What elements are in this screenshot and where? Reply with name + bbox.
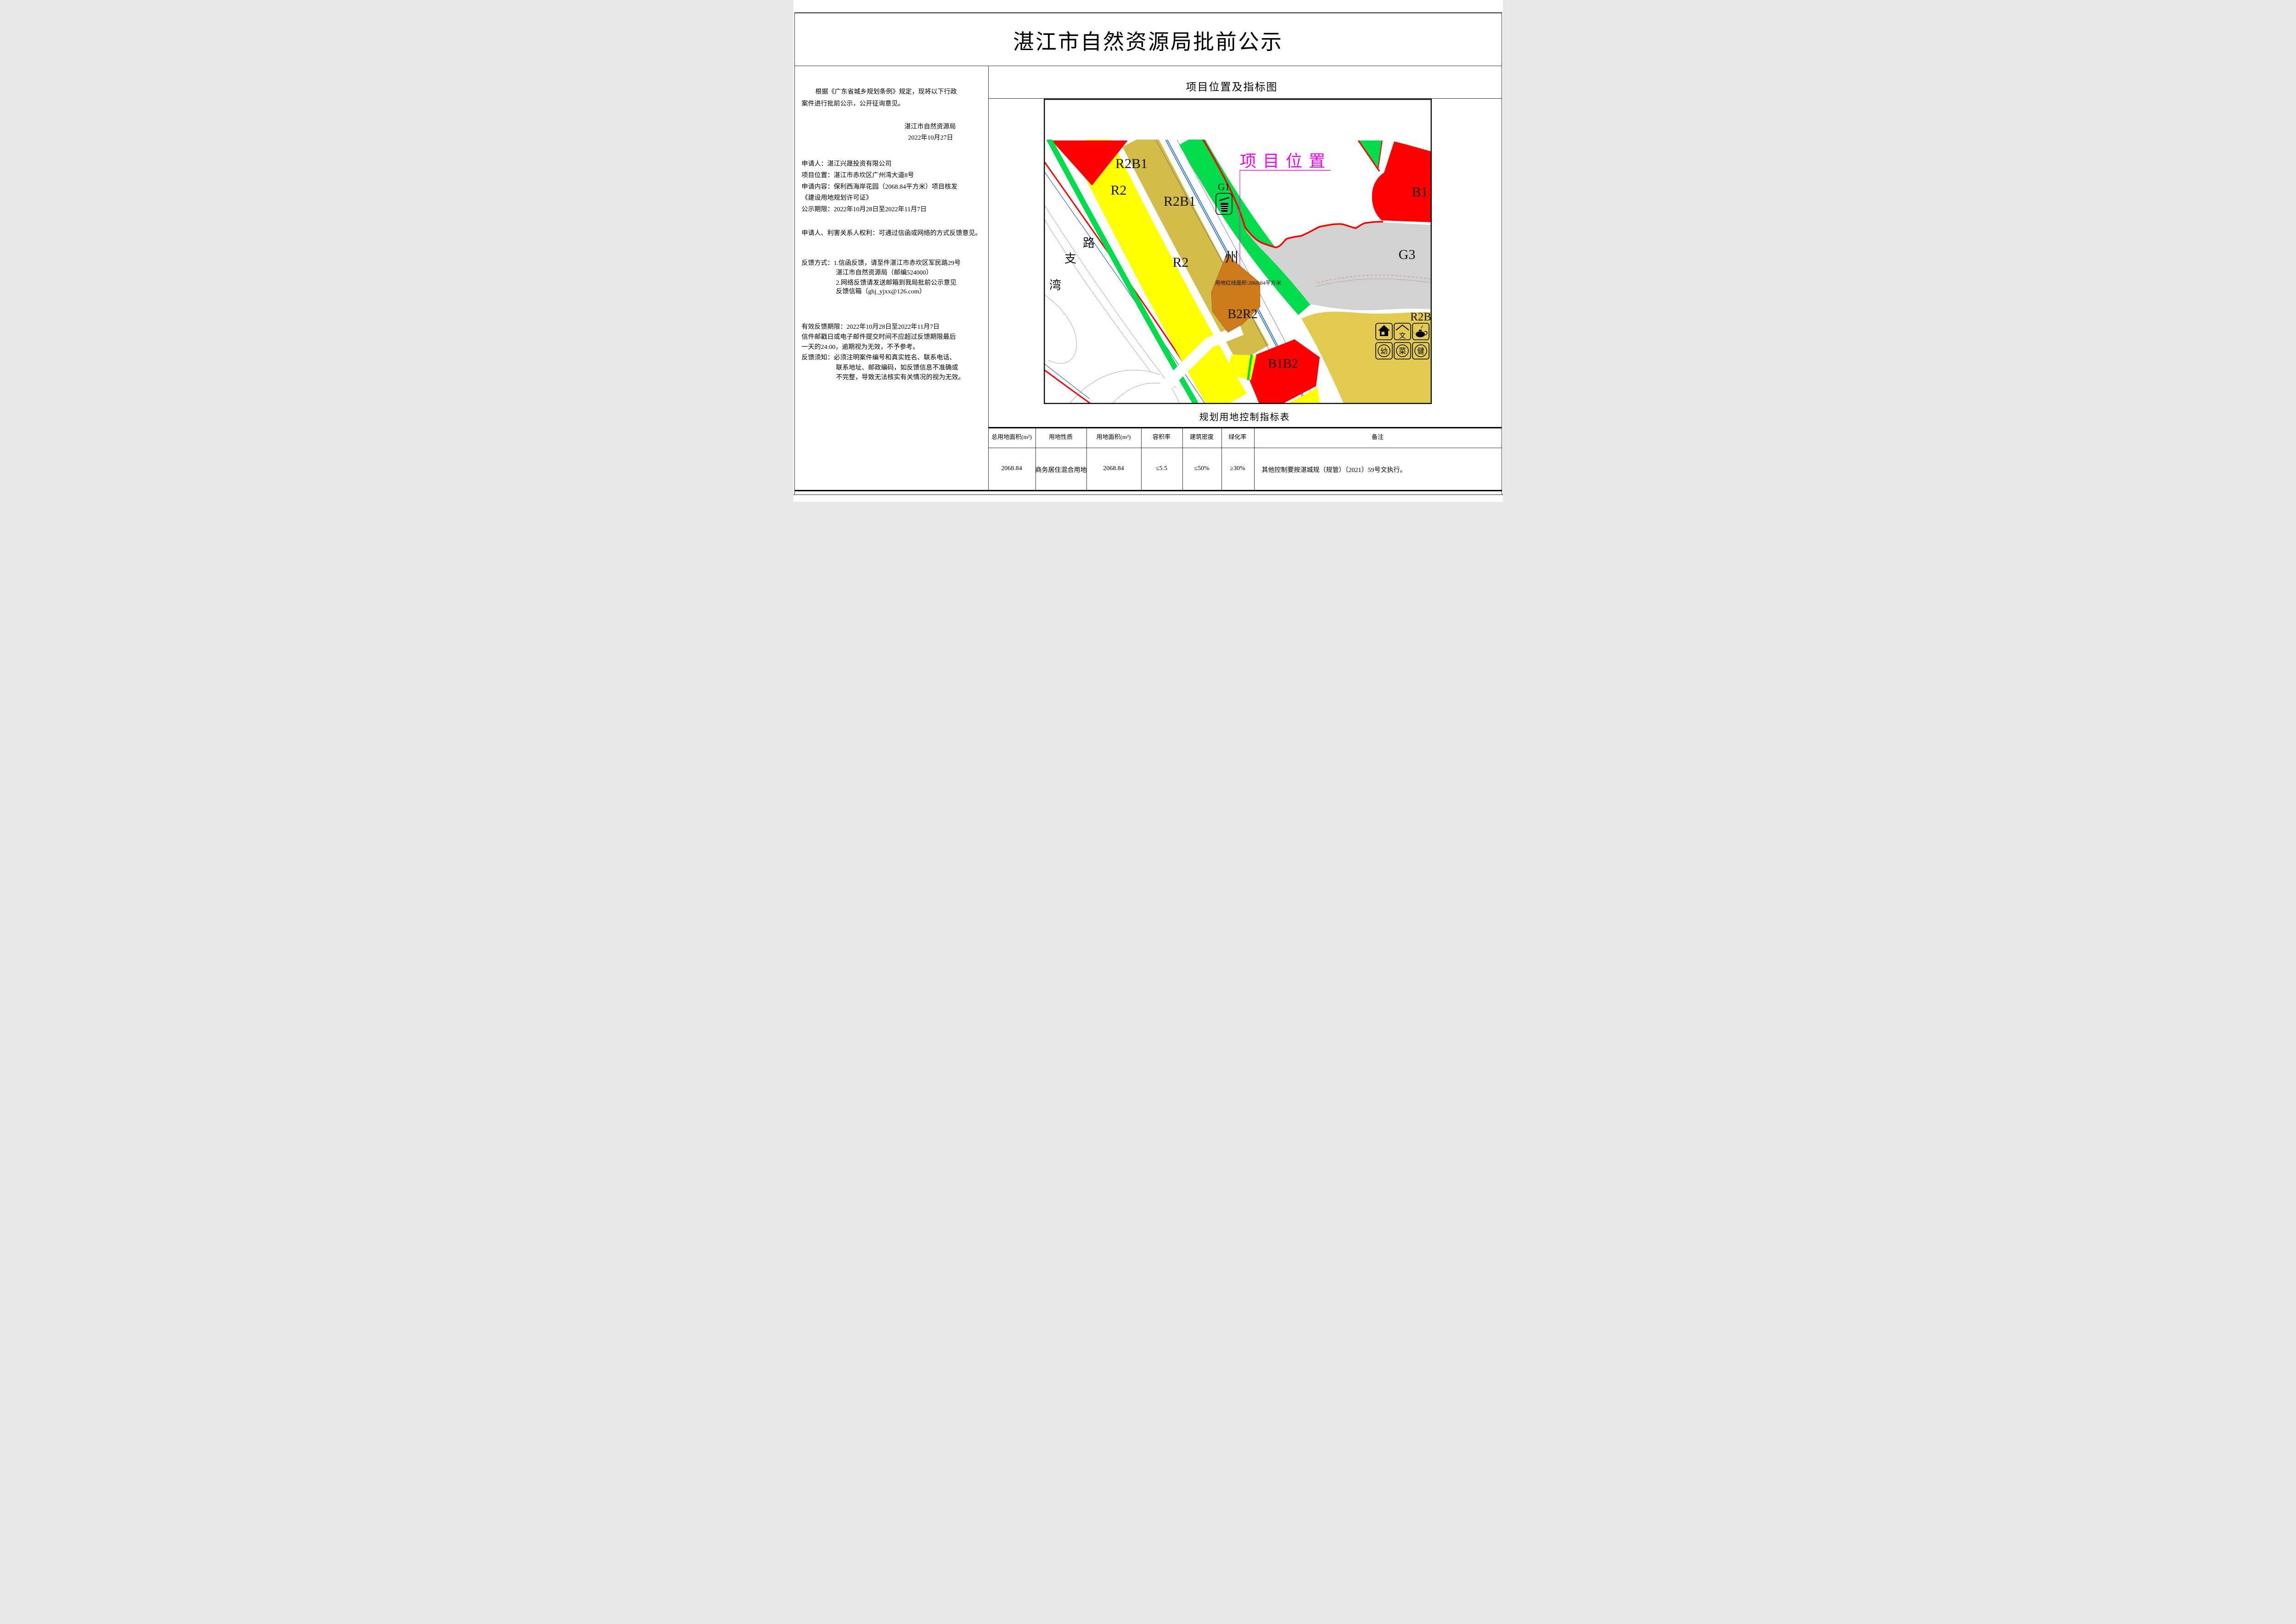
cell-land-area: 2068.84 [1086, 465, 1141, 472]
page-bottom-border [793, 495, 1503, 495]
label-r2-a: R2 [1110, 183, 1126, 198]
publicity-period-line: 公示期限：2022年10月28日至2022年11月7日 [802, 204, 927, 214]
page-right-border [1502, 12, 1502, 495]
label-b1b2: B1B2 [1268, 357, 1298, 371]
label-b1: B1 [1412, 185, 1428, 200]
rights-line: 申请人、利害关系人权利：可通过信函或网络的方式反馈意见。 [802, 228, 982, 237]
location-map: 项目位置 文 [1044, 99, 1432, 404]
notice-line1: 反馈须知：必须注明案件编号和真实姓名、联系电话、 [802, 353, 956, 362]
feedback-email-line: 反馈信箱（ghj_yjxx@126.com） [836, 287, 926, 296]
feedback-method-line2: 湛江市自然资源局（邮编524000） [836, 268, 933, 277]
map-top-mask [1044, 99, 1431, 140]
cell-remarks: 其他控制要按湛城规（规管）〔2021〕59号文执行。 [1262, 465, 1501, 474]
header-building-density: 建筑密度 [1182, 432, 1221, 441]
left-panel-line: 根据《广东省城乡规划条例》规定，现将以下行政 [816, 87, 957, 96]
table-bottom-line [794, 490, 1502, 491]
kindergarten-icon-char: 幼 [1380, 347, 1387, 355]
map-heading: 项目位置及指标图 [988, 78, 1476, 94]
health-icon-char: 健 [1417, 347, 1424, 355]
deadline-line2: 一天的24:00，逾期视为无效，不予参考。 [802, 342, 919, 351]
page-left-border [794, 12, 795, 495]
header-plot-ratio: 容积率 [1141, 432, 1182, 441]
teapot-lid [1419, 330, 1422, 331]
header-land-use-nature: 用地性质 [1035, 432, 1086, 441]
page-top-border [794, 12, 1502, 13]
issuer-name: 湛江市自然资源局 [905, 122, 956, 131]
notice-line2: 联系地址、邮政编码，如反馈信息不准确或 [836, 363, 958, 372]
announcement-page: 湛江市自然资源局批前公示 根据《广东省城乡规划条例》规定，现将以下行政 案件进行… [793, 0, 1503, 502]
label-b2r2: B2R2 [1227, 307, 1257, 321]
zoning-map-svg: 项目位置 文 [1044, 99, 1431, 404]
project-location-callout: 项目位置 [1240, 152, 1332, 170]
applicant-line: 申请人：湛江兴晟投资有限公司 [802, 159, 892, 168]
notice-line3: 不完整，导致无法核实有关情况的视为无效。 [836, 372, 965, 382]
road-name-zhi: 支 [1064, 252, 1076, 265]
label-g3: G3 [1398, 247, 1415, 262]
header-land-area: 用地面积(m²) [1086, 432, 1141, 441]
header-total-land-area: 总用地面积(m²) [988, 432, 1035, 441]
label-g1: G1 [1218, 181, 1230, 192]
application-content-line: 申请内容：保利西海岸花园（2068.84平方米）项目核发 [802, 182, 958, 191]
cell-green-ratio: ≥30% [1221, 465, 1254, 472]
project-location-line: 项目位置：湛江市赤坎区广州湾大道8号 [802, 170, 914, 180]
label-r2b1-a: R2B1 [1115, 156, 1147, 171]
valid-period-line: 有效反馈期限：2022年10月28日至2022年11月7日 [802, 322, 940, 331]
left-panel-line: 案件进行批前公示，公开征询意见。 [802, 99, 905, 108]
page-title: 湛江市自然资源局批前公示 [793, 25, 1503, 56]
table-title: 规划用地控制指标表 [988, 410, 1502, 423]
application-content-line2: 《建设用地规划许可证》 [802, 193, 872, 202]
teapot-body [1416, 332, 1425, 337]
table-thick-line [988, 427, 1502, 428]
panel-divider [988, 66, 989, 490]
cell-total-land-area: 2068.84 [988, 465, 1035, 472]
issue-date: 2022年10月27日 [908, 133, 953, 142]
road-name-zhou: 州 [1225, 250, 1238, 265]
label-r2-b: R2 [1172, 255, 1188, 270]
label-r2b: R2B [1410, 311, 1431, 323]
cell-plot-ratio: ≤5.5 [1141, 465, 1182, 472]
cell-land-use-nature: 商务居住混合用地 [1035, 465, 1086, 474]
house-icon-window [1381, 332, 1384, 335]
market-icon-char: 菜 [1398, 347, 1406, 355]
header-green-ratio: 绿化率 [1221, 432, 1254, 441]
road-name-wan: 湾 [1049, 279, 1061, 292]
feedback-method-line3: 2.网络反馈请发送邮箱到我局批前公示意见 [836, 278, 957, 287]
header-remarks: 备注 [1254, 432, 1502, 441]
label-r2b1-b: R2B1 [1163, 194, 1195, 209]
title-separator [794, 66, 1502, 66]
culture-icon-char: 文 [1399, 332, 1406, 340]
deadline-line1: 信件邮戳日或电子邮件提交时间不应超过反馈期限最后 [802, 332, 956, 341]
feedback-method-line1: 反馈方式：1.信函反馈，请至件湛江市赤坎区军民路29号 [802, 258, 961, 267]
cell-building-density: ≤50% [1182, 465, 1221, 472]
road-name-lu: 路 [1082, 236, 1094, 250]
red-line-area-note: 用地红线面积:2068.84平方米 [1215, 280, 1282, 286]
table-header-bottom-line [988, 448, 1502, 448]
